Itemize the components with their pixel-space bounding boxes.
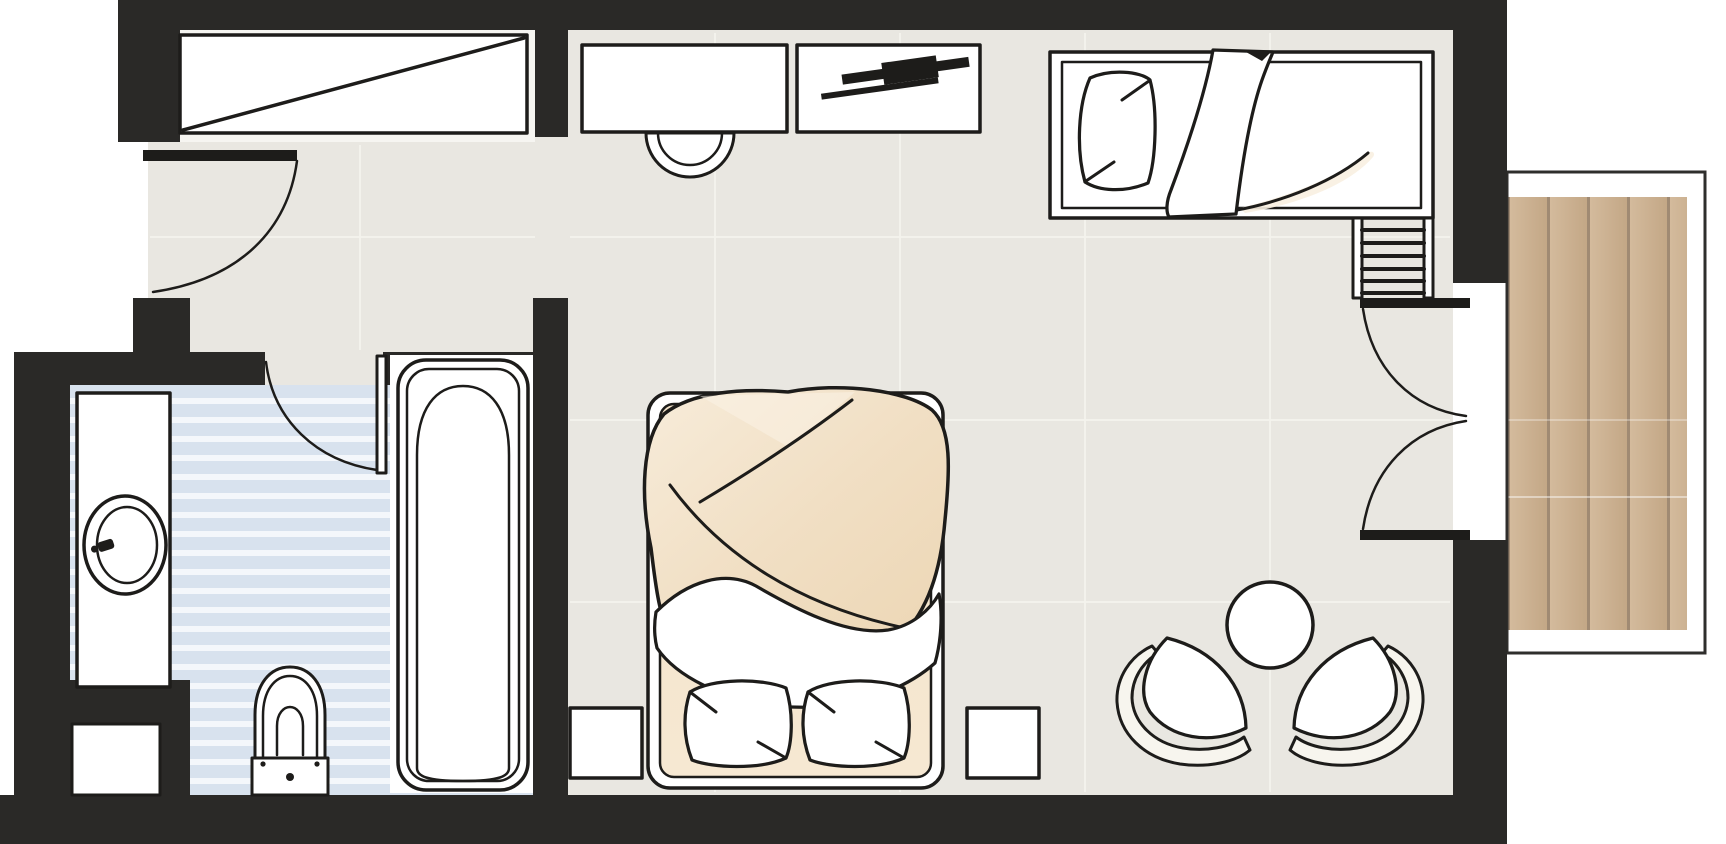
passage-floor — [535, 137, 568, 298]
pillow-left — [685, 681, 791, 767]
double-bed — [644, 388, 948, 788]
floor-plan — [0, 0, 1726, 844]
nightstand-right — [967, 708, 1039, 778]
wardrobe — [180, 35, 527, 133]
balcony — [1507, 172, 1705, 653]
balcony-door-leaf-top — [1360, 298, 1470, 308]
nightstand-left — [570, 708, 642, 778]
wood-deck — [1507, 197, 1687, 630]
wall-top — [118, 0, 1507, 30]
desk — [582, 45, 787, 132]
pillow-right — [803, 681, 909, 767]
single-bed — [1050, 50, 1433, 218]
wall-wardrobe-column — [535, 0, 568, 137]
service-niche — [72, 724, 160, 795]
toilet-bowl — [255, 667, 325, 758]
wall-bottom — [0, 795, 1507, 844]
bath-threshold — [265, 352, 383, 385]
floor-plan-canvas — [0, 0, 1726, 844]
entrance-door-leaf — [143, 150, 297, 161]
balcony-door-leaf-bottom — [1360, 530, 1470, 540]
wall-bath-divider — [533, 298, 568, 800]
vanity — [77, 393, 170, 687]
entry-floor — [148, 140, 535, 352]
wall-entry-stub — [133, 298, 190, 356]
wall-top-left — [118, 0, 180, 142]
single-bed-pillow — [1079, 72, 1155, 190]
toilet — [252, 667, 328, 795]
bathroom-door-leaf — [377, 356, 386, 473]
wall-right-upper — [1453, 28, 1507, 283]
bathtub — [390, 355, 533, 793]
coffee-table — [1227, 582, 1313, 668]
